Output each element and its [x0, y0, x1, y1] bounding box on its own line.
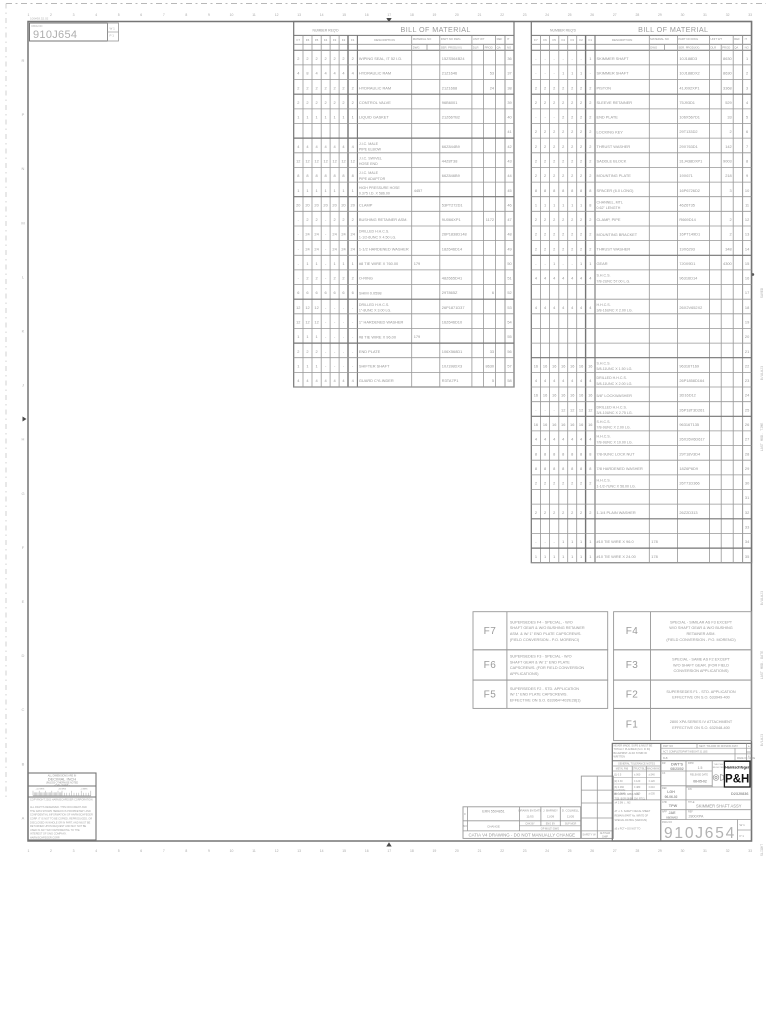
svg-text:1-1/2-6UNC X 4.50 LG.: 1-1/2-6UNC X 4.50 LG. [359, 235, 396, 239]
svg-text:16: 16 [570, 393, 574, 398]
svg-text:24: 24 [745, 393, 750, 398]
svg-text:16PT149D1: 16PT149D1 [679, 232, 700, 237]
svg-text:2: 2 [544, 100, 546, 105]
svg-text:(FIELD CONVERSION - P.O. MOREN: (FIELD CONVERSION - P.O. MORENCI) [666, 638, 736, 642]
svg-text:1: 1 [535, 554, 537, 559]
svg-text:-: - [325, 276, 327, 281]
svg-text:-: - [544, 407, 546, 412]
svg-text:2: 2 [342, 56, 344, 61]
svg-text:8: 8 [535, 451, 537, 456]
svg-text:2: 2 [316, 217, 318, 222]
svg-text:2: 2 [562, 85, 564, 90]
svg-text:48: 48 [507, 232, 511, 237]
svg-text:6: 6 [325, 290, 327, 295]
svg-text:25: 25 [568, 849, 572, 853]
svg-text:2: 2 [730, 217, 732, 222]
svg-text:-: - [535, 115, 537, 120]
svg-text:28: 28 [636, 13, 640, 17]
svg-text:PISTON: PISTON [597, 85, 612, 90]
svg-text:6: 6 [140, 13, 142, 17]
svg-text:1: 1 [571, 554, 573, 559]
svg-text:38: 38 [507, 85, 511, 90]
svg-text:13: 13 [297, 13, 301, 17]
svg-text:W/ 1" END PLATE CAPSCREWS.: W/ 1" END PLATE CAPSCREWS. [510, 693, 568, 697]
svg-text:REF: REF [688, 811, 693, 814]
svg-text:4457: 4457 [414, 188, 423, 193]
svg-text:HYDRAULIC RAM: HYDRAULIC RAM [359, 71, 391, 76]
svg-text:8: 8 [553, 188, 555, 193]
svg-text:#10 TIE WIRE X 24.00: #10 TIE WIRE X 24.00 [597, 554, 637, 559]
svg-text:-: - [298, 276, 300, 281]
svg-text:28: 28 [636, 849, 640, 853]
svg-text:F7: F7 [297, 38, 301, 42]
svg-text:8: 8 [544, 451, 546, 456]
svg-text:4300: 4300 [723, 261, 732, 266]
svg-text:16: 16 [588, 363, 592, 368]
svg-text:7/8-9UNC LOCK NUT: 7/8-9UNC LOCK NUT [597, 451, 636, 456]
svg-text:DWG NO: DWG NO [32, 24, 43, 28]
svg-text:-: - [343, 305, 345, 310]
svg-text:1: 1 [562, 202, 564, 207]
svg-text:SKIMMER SHAFT: SKIMMER SHAFT [597, 56, 630, 61]
svg-text:2: 2 [334, 100, 336, 105]
svg-text:529: 529 [725, 100, 732, 105]
svg-text:1: 1 [297, 363, 299, 368]
svg-text:19: 19 [433, 849, 437, 853]
svg-text:#8 TIE WIRE X 760.00: #8 TIE WIRE X 760.00 [359, 261, 399, 266]
svg-text:CORP. IT IS NOT TO BE COPIED,: CORP. IT IS NOT TO BE COPIED, REPRODUCED… [30, 818, 92, 821]
svg-text:21Z1646: 21Z1646 [442, 71, 457, 76]
svg-text:1: 1 [589, 539, 591, 544]
svg-text:8: 8 [589, 202, 591, 207]
svg-text:27: 27 [745, 437, 749, 442]
svg-text:8: 8 [589, 188, 591, 193]
svg-text:F4: F4 [561, 38, 565, 42]
svg-text:1: 1 [589, 261, 591, 266]
svg-text:31J438DXP1: 31J438DXP1 [679, 159, 702, 164]
svg-text:R3TA7P1: R3TA7P1 [442, 378, 459, 383]
svg-text:2: 2 [544, 510, 546, 515]
svg-text:47: 47 [507, 217, 511, 222]
svg-text:26X26V6D617: 26X26V6D617 [679, 437, 704, 442]
svg-text:29T865Z: 29T865Z [442, 290, 458, 295]
svg-text:RELEASE DATE: RELEASE DATE [690, 774, 708, 777]
svg-text:4: 4 [334, 71, 337, 76]
svg-text:3/4-10UNC X 2.75 LG.: 3/4-10UNC X 2.75 LG. [597, 411, 633, 415]
svg-text:CHK BY: CHK BY [525, 823, 535, 826]
svg-text:-: - [544, 115, 546, 120]
svg-text:1: 1 [571, 202, 573, 207]
svg-text:8: 8 [571, 466, 573, 471]
svg-text:11: 11 [745, 202, 749, 207]
svg-text:SPACER (6.0 LONG): SPACER (6.0 LONG) [597, 188, 635, 193]
svg-text:A: A [748, 745, 750, 748]
svg-text:-: - [298, 246, 300, 251]
svg-text:PART NO DWG: PART NO DWG [441, 37, 461, 41]
svg-text:F7: F7 [534, 38, 538, 42]
svg-text:2: 2 [352, 217, 354, 222]
svg-text:BILL OF MATERIAL: BILL OF MATERIAL [401, 25, 471, 34]
svg-text:P 1: P 1 [740, 834, 745, 838]
svg-text:-: - [352, 349, 354, 354]
svg-text:F1: F1 [589, 38, 593, 42]
svg-text:BILL OF MATERIAL: BILL OF MATERIAL [638, 25, 708, 34]
svg-text:12: 12 [305, 305, 309, 310]
svg-text:2: 2 [334, 276, 336, 281]
svg-text:1: 1 [589, 554, 591, 559]
svg-text:1: 1 [316, 261, 318, 266]
svg-text:2: 2 [306, 349, 308, 354]
svg-text:QA: QA [497, 46, 501, 50]
svg-text:31: 31 [703, 849, 707, 853]
svg-text:8: 8 [589, 451, 591, 456]
svg-text:SHIP: SHIP [602, 834, 608, 838]
svg-text:4: 4 [580, 276, 583, 281]
svg-text:4: 4 [325, 378, 328, 383]
svg-text:19X6293: 19X6293 [679, 246, 695, 251]
svg-text:2: 2 [535, 173, 537, 178]
svg-text:8: 8 [325, 173, 327, 178]
svg-text:12: 12 [314, 320, 318, 325]
svg-text:F2: F2 [579, 38, 583, 42]
svg-text:LAST MOD. TIME: LAST MOD. TIME [761, 423, 765, 452]
svg-text:2: 2 [730, 232, 732, 237]
svg-text:4: 4 [325, 71, 328, 76]
svg-text:29X763D1: 29X763D1 [679, 144, 697, 149]
svg-text:1: 1 [553, 261, 555, 266]
svg-text:2: 2 [580, 85, 582, 90]
svg-text:10J198DX3: 10J198DX3 [442, 363, 462, 368]
svg-text:96316D14: 96316D14 [679, 276, 698, 281]
svg-text:50: 50 [507, 261, 512, 266]
svg-text:20: 20 [314, 202, 319, 207]
svg-text:Harnischfeger: Harnischfeger [725, 765, 750, 769]
svg-text:4: 4 [334, 378, 337, 383]
svg-text:-: - [298, 232, 300, 237]
svg-text:-: - [325, 246, 327, 251]
svg-text:19X671: 19X671 [679, 173, 692, 178]
svg-text:SHAFT GEAR & W/O BUSHING RETAI: SHAFT GEAR & W/O BUSHING RETAINER [510, 626, 585, 630]
svg-text:4: 4 [544, 305, 547, 310]
svg-text:EFFECTIVE ON S.O. 633949-400: EFFECTIVE ON S.O. 633949-400 [672, 696, 730, 700]
svg-text:2: 2 [562, 159, 564, 164]
svg-text:53: 53 [507, 305, 511, 310]
svg-text:2: 2 [553, 100, 555, 105]
svg-text:±.005: ±.005 [649, 793, 656, 796]
svg-text:2: 2 [297, 85, 299, 90]
svg-text:2: 2 [334, 217, 336, 222]
svg-text:2: 2 [580, 100, 582, 105]
svg-text:M: M [21, 220, 24, 225]
svg-text:6: 6 [316, 290, 318, 295]
svg-text:-: - [352, 334, 354, 339]
svg-text:1: 1 [562, 539, 564, 544]
svg-text:2: 2 [589, 246, 591, 251]
svg-text:1: 1 [342, 115, 344, 120]
svg-text:8: 8 [580, 188, 582, 193]
svg-text:12: 12 [332, 159, 336, 164]
svg-text:2: 2 [325, 100, 327, 105]
svg-text:30: 30 [681, 13, 685, 17]
svg-text:22: 22 [745, 363, 749, 368]
svg-text:METAL FAB: METAL FAB [616, 768, 629, 771]
svg-text:10J188DX2: 10J188DX2 [679, 71, 699, 76]
svg-text:DWG NO: DWG NO [662, 821, 672, 824]
svg-text:2: 2 [746, 71, 748, 76]
svg-text:H: H [22, 437, 25, 442]
svg-text:CAUTION:: CAUTION: [614, 789, 626, 792]
svg-text:29T133D2: 29T133D2 [679, 129, 697, 134]
svg-text:18Z6P6D9: 18Z6P6D9 [679, 466, 698, 471]
svg-text:4: 4 [544, 276, 547, 281]
svg-text:2: 2 [571, 173, 573, 178]
svg-text:MOUNTING BRACKET: MOUNTING BRACKET [597, 232, 638, 237]
svg-text:1: 1 [342, 261, 344, 266]
svg-text:2: 2 [589, 115, 591, 120]
svg-text:26P18T3D261: 26P18T3D261 [679, 407, 704, 412]
svg-text:9: 9 [208, 13, 210, 17]
svg-text:1: 1 [334, 115, 336, 120]
svg-text:32: 32 [745, 510, 749, 515]
svg-text:BLUEPRINT. ALSO SYMB OF: BLUEPRINT. ALSO SYMB OF [614, 752, 648, 755]
svg-text:4: 4 [746, 100, 749, 105]
svg-text:GENERAL TOLERANCE NOTES: GENERAL TOLERANCE NOTES [618, 762, 655, 765]
svg-text:(1) 0.5: (1) 0.5 [614, 773, 622, 776]
svg-text:37: 37 [507, 71, 511, 76]
svg-text:F3: F3 [626, 660, 639, 671]
svg-text:2: 2 [553, 481, 555, 486]
svg-text:8: 8 [562, 466, 564, 471]
svg-text:25: 25 [568, 13, 572, 17]
svg-text:8: 8 [185, 849, 187, 853]
svg-text:21: 21 [478, 849, 482, 853]
svg-text:15: 15 [342, 849, 346, 853]
svg-text:4: 4 [352, 71, 355, 76]
svg-text:2: 2 [589, 144, 591, 149]
svg-text:5: 5 [118, 13, 120, 17]
svg-text:2: 2 [580, 159, 582, 164]
svg-text:F5: F5 [315, 38, 319, 42]
svg-text:NEVER MADE. SUPS & MUST BE: NEVER MADE. SUPS & MUST BE [614, 745, 653, 748]
svg-text:7J0X9D1: 7J0X9D1 [679, 261, 695, 266]
svg-text:2: 2 [316, 85, 318, 90]
svg-text:APPLICATIONS): APPLICATIONS) [510, 672, 539, 676]
svg-text:2: 2 [535, 85, 537, 90]
svg-text:14: 14 [320, 849, 324, 853]
svg-text:DWG: DWG [650, 46, 657, 50]
svg-text:1: 1 [571, 539, 573, 544]
svg-text:E: E [22, 599, 25, 604]
svg-text:-: - [544, 71, 546, 76]
svg-text:35: 35 [745, 554, 749, 559]
svg-text:-: - [343, 320, 345, 325]
svg-text:178: 178 [651, 554, 658, 559]
svg-text:66Z844B9: 66Z844B9 [442, 144, 460, 149]
svg-text:IT: IT [507, 37, 510, 41]
svg-text:REGISTER: REGISTER [713, 767, 725, 769]
svg-text:2: 2 [342, 85, 344, 90]
svg-text:2: 2 [571, 232, 573, 237]
svg-text:ERN 5504851: ERN 5504851 [482, 810, 505, 814]
svg-text:21Z1668: 21Z1668 [442, 85, 457, 90]
svg-text:45: 45 [507, 188, 511, 193]
svg-text:CLAMP: CLAMP [359, 203, 373, 208]
svg-text:218: 218 [725, 173, 732, 178]
svg-text:1.5: 1.5 [698, 766, 703, 770]
svg-text:-0 BRS: -0 BRS [80, 788, 88, 790]
svg-text:2: 2 [589, 232, 591, 237]
svg-text:SER. PROD(XX): SER. PROD(XX) [441, 46, 462, 50]
svg-text:2: 2 [334, 56, 336, 61]
svg-text:348: 348 [725, 246, 732, 251]
svg-text:1: 1 [580, 554, 582, 559]
svg-text:4: 4 [316, 71, 319, 76]
svg-text:106X568D1: 106X568D1 [442, 349, 463, 354]
svg-text:75J93D1: 75J93D1 [679, 100, 695, 105]
svg-text:ENG BY: ENG BY [546, 823, 556, 826]
svg-text:24: 24 [545, 849, 549, 853]
svg-text:16: 16 [588, 422, 592, 427]
svg-text:-: - [544, 56, 546, 61]
svg-text:B: B [22, 761, 25, 766]
svg-text:4: 4 [342, 378, 345, 383]
svg-text:2: 2 [535, 246, 537, 251]
svg-text:2: 2 [316, 56, 318, 61]
svg-text:LGH: LGH [667, 790, 675, 794]
svg-text:16: 16 [365, 849, 369, 853]
svg-text:8: 8 [746, 159, 748, 164]
svg-text:A: A [22, 815, 25, 820]
svg-text:2: 2 [535, 232, 537, 237]
svg-text:B/ALWJ3: B/ALWJ3 [760, 591, 765, 605]
svg-text:9: 9 [746, 173, 748, 178]
svg-text:HARNISCHFEGER CORP.: HARNISCHFEGER CORP. [30, 837, 60, 840]
svg-text:46: 46 [507, 202, 511, 207]
svg-text:1" HARDENED WASHER: 1" HARDENED WASHER [359, 320, 404, 325]
svg-text:USED IN ANY WAY DETRIMENTAL TO: USED IN ANY WAY DETRIMENTAL TO THE [30, 829, 80, 832]
svg-text:J: J [22, 383, 24, 388]
svg-text:7/8 HARDENED WASHER: 7/8 HARDENED WASHER [597, 466, 644, 471]
svg-text:1"-8UNC X 3.00 LG.: 1"-8UNC X 3.00 LG. [359, 309, 391, 313]
svg-text:HYDRAULIC RAM: HYDRAULIC RAM [359, 85, 391, 90]
svg-text:4: 4 [562, 378, 565, 383]
svg-text:2: 2 [580, 217, 582, 222]
svg-text:-: - [554, 115, 556, 120]
svg-text:31: 31 [703, 13, 707, 17]
svg-text:2: 2 [50, 13, 52, 17]
svg-text:SHAFT GEAR & W/ 1" END PLATE: SHAFT GEAR & W/ 1" END PLATE [510, 660, 570, 664]
svg-text:12: 12 [305, 159, 309, 164]
svg-text:SUPERSEDES F1 - STD. APPLICATI: SUPERSEDES F1 - STD. APPLICATION [666, 690, 735, 694]
svg-text:66Z846B9: 66Z846B9 [442, 173, 460, 178]
svg-text:24: 24 [314, 232, 319, 237]
svg-text:24: 24 [351, 246, 356, 251]
svg-text:1: 1 [535, 202, 537, 207]
svg-text:2: 2 [553, 144, 555, 149]
svg-text:2: 2 [342, 276, 344, 281]
svg-text:-: - [325, 320, 327, 325]
svg-text:BUSHING RETAINER ASM.: BUSHING RETAINER ASM. [359, 217, 408, 222]
svg-text:2: 2 [535, 510, 537, 515]
svg-text:TCB. BGR-26/BR CM. RTCL: TCB. BGR-26/BR CM. RTCL [615, 797, 646, 800]
svg-text:48Z665D41: 48Z665D41 [442, 276, 462, 281]
svg-text:1-1/2 HARDENED WASHER: 1-1/2 HARDENED WASHER [359, 246, 409, 251]
svg-text:16: 16 [579, 363, 583, 368]
svg-text:2: 2 [730, 129, 732, 134]
svg-text:REMAIN (PART No. WR/TE OF: REMAIN (PART No. WR/TE OF [615, 815, 649, 818]
svg-text:30: 30 [681, 849, 685, 853]
svg-text:2: 2 [589, 481, 591, 486]
svg-text:21: 21 [478, 13, 482, 17]
svg-text:2: 2 [306, 217, 308, 222]
svg-text:12: 12 [341, 159, 345, 164]
svg-text:DISCLOSED IN WHOLE OR IN PART,: DISCLOSED IN WHOLE OR IN PART, AND MUST … [30, 821, 91, 824]
svg-text:4: 4 [553, 276, 556, 281]
svg-text:2: 2 [571, 100, 573, 105]
svg-text:-: - [580, 56, 582, 61]
svg-text:MACHINING: MACHINING [647, 768, 660, 771]
svg-text:3368: 3368 [723, 85, 732, 90]
svg-text:1: 1 [544, 202, 546, 207]
svg-text:F: F [464, 812, 466, 816]
svg-text:SHIFTER SHAFT: SHIFTER SHAFT [359, 364, 390, 369]
svg-text:1: 1 [306, 261, 308, 266]
svg-text:8: 8 [580, 466, 582, 471]
svg-text:H.H.C.S.: H.H.C.S. [597, 303, 611, 307]
svg-text:18: 18 [745, 305, 749, 310]
svg-text:2: 2 [306, 85, 308, 90]
svg-text:ACT. COMPLETE/PART WEIGHT 31: ACT. COMPLETE/PART WEIGHT 31 LBS [663, 751, 708, 754]
svg-text:DRILLED H.H.C.S.: DRILLED H.H.C.S. [359, 230, 389, 234]
svg-text:F1: F1 [626, 720, 639, 731]
svg-text:DRAWN BY/DATE: DRAWN BY/DATE [519, 809, 542, 813]
svg-text:12: 12 [570, 407, 574, 412]
svg-text:2: 2 [342, 217, 344, 222]
svg-text:9: 9 [208, 849, 210, 853]
svg-text:2: 2 [553, 232, 555, 237]
svg-text:REF: REF [734, 37, 740, 41]
svg-text:14: 14 [745, 246, 750, 251]
svg-text:D: D [22, 653, 25, 658]
svg-text:-: - [554, 407, 556, 412]
svg-text:-: - [343, 349, 345, 354]
svg-text:29: 29 [745, 466, 749, 471]
svg-text:12: 12 [296, 305, 300, 310]
svg-text:16: 16 [543, 393, 547, 398]
svg-text:1: 1 [553, 554, 555, 559]
svg-text:8: 8 [342, 173, 344, 178]
svg-text:±.010: ±.010 [649, 786, 656, 789]
svg-text:1: 1 [325, 115, 327, 120]
svg-text:1: 1 [352, 188, 354, 193]
svg-text:F4: F4 [626, 626, 639, 637]
svg-text:4: 4 [352, 144, 355, 149]
svg-text:EFFECTIVE ON S.O. 632048-400: EFFECTIVE ON S.O. 632048-400 [672, 726, 730, 730]
svg-text:16: 16 [534, 422, 538, 427]
svg-text:-: - [325, 363, 327, 368]
svg-text:2: 2 [589, 129, 591, 134]
svg-text:4: 4 [589, 276, 592, 281]
svg-text:SKIMMER SHAFT: SKIMMER SHAFT [597, 71, 630, 76]
svg-text:44Z8T38: 44Z8T38 [442, 159, 458, 164]
svg-text:CLAMP, PIPE: CLAMP, PIPE [597, 217, 621, 222]
svg-text:2: 2 [535, 481, 537, 486]
svg-text:-: - [535, 407, 537, 412]
svg-text:D. COLWELL: D. COLWELL [562, 809, 580, 813]
svg-text:-: - [535, 56, 537, 61]
svg-text:CATIA V4 DRAWING - DO NOT MANU: CATIA V4 DRAWING - DO NOT MANUALLY CHANG… [468, 833, 575, 838]
svg-text:5/8" LOCKWASHER: 5/8" LOCKWASHER [597, 393, 633, 398]
